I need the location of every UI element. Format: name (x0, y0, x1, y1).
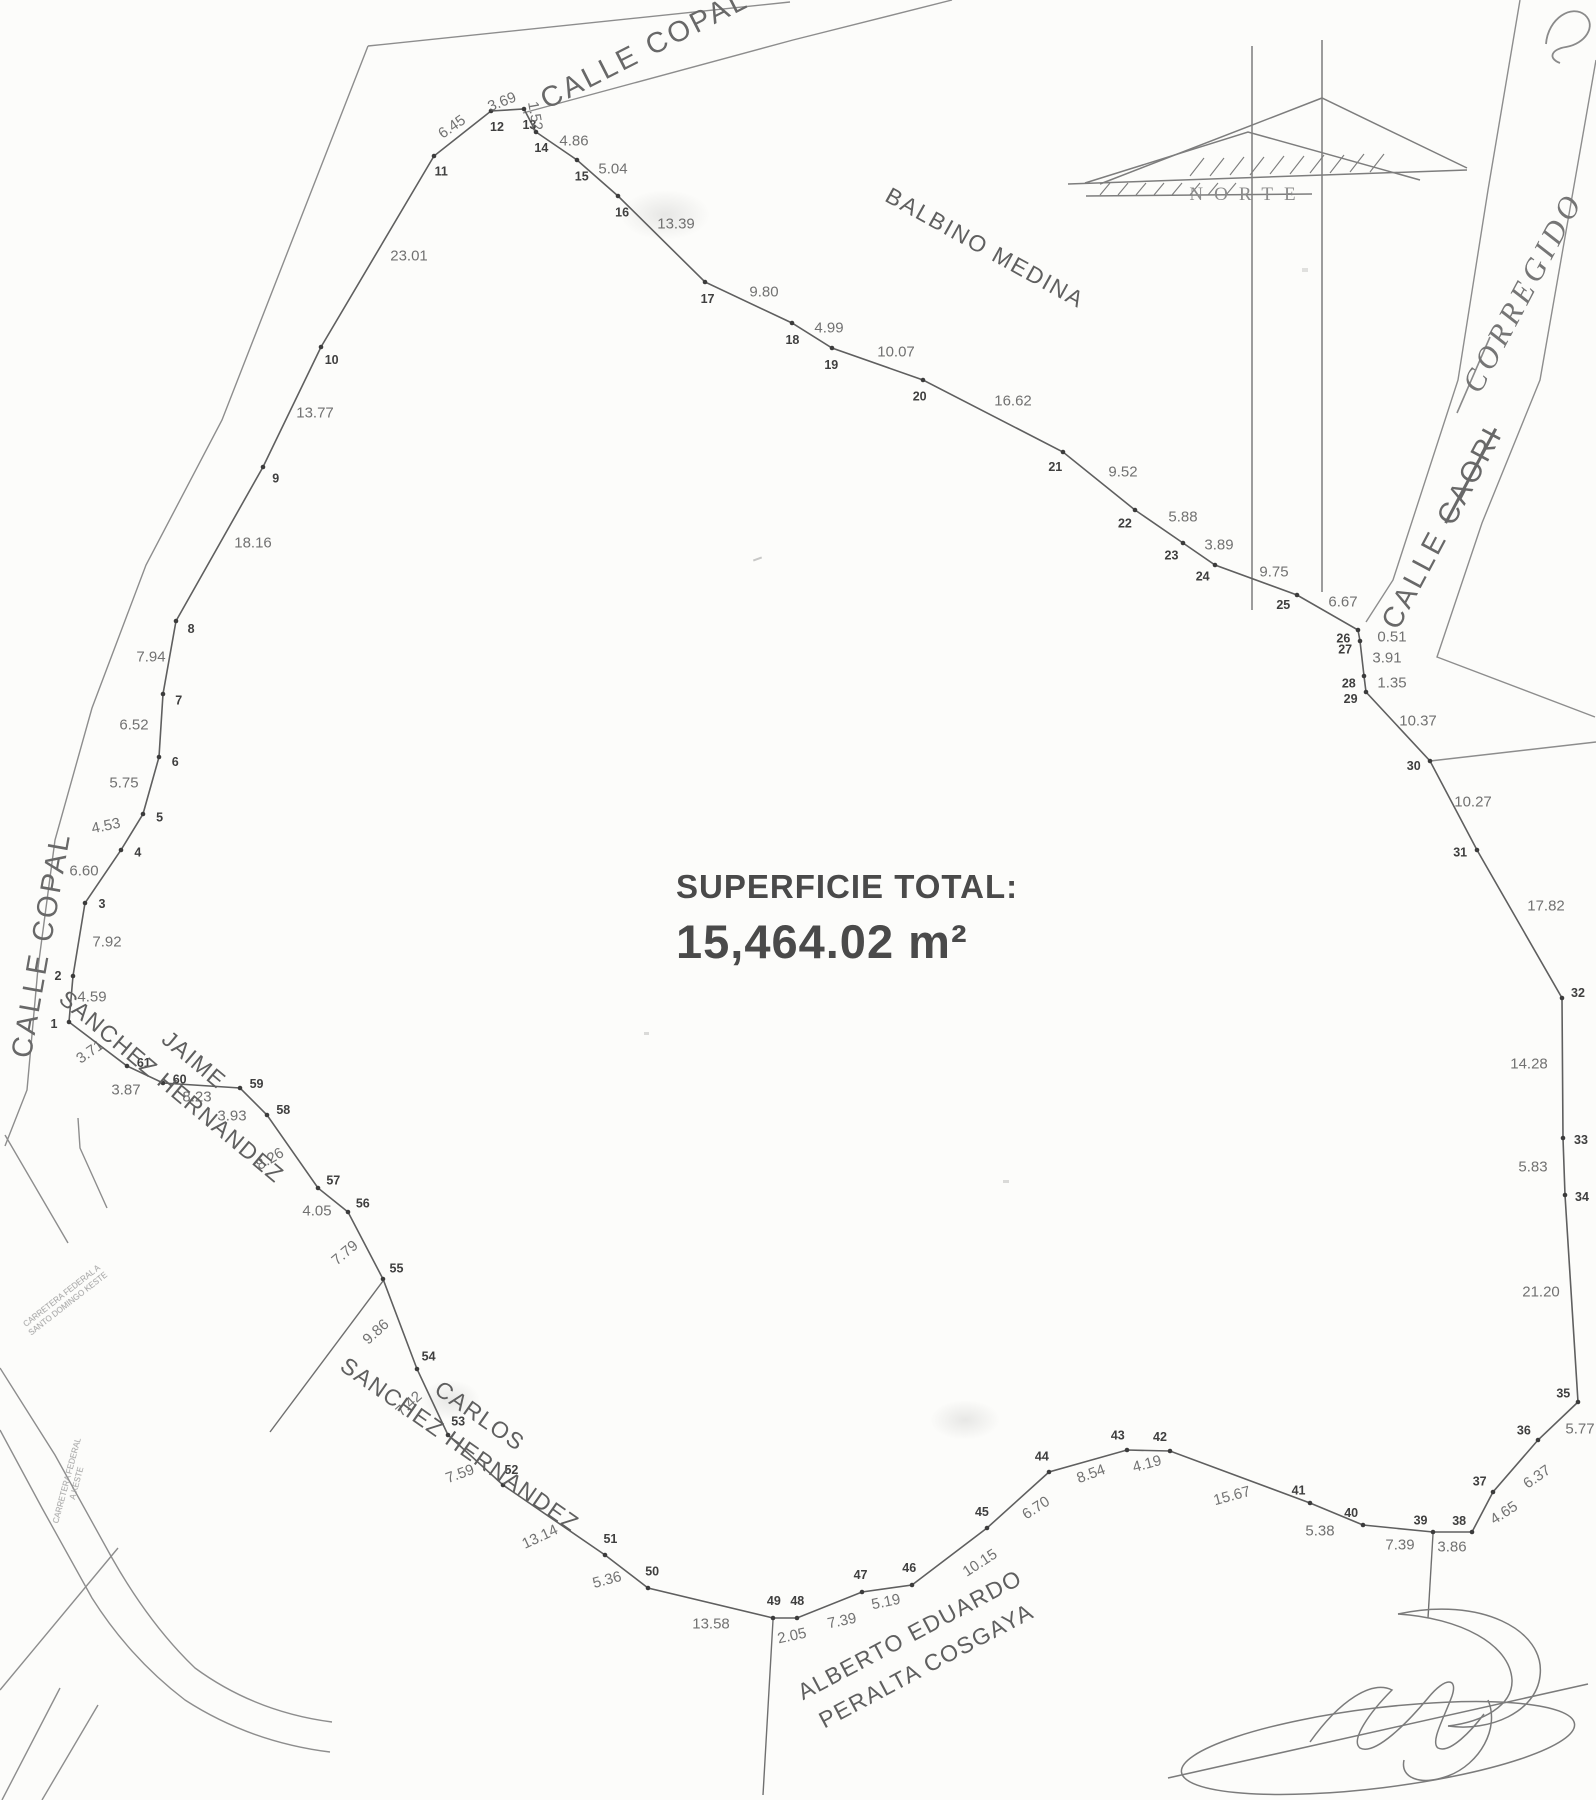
svg-text:6.45: 6.45 (435, 112, 469, 143)
vertex-number: 55 (390, 1262, 404, 1276)
vertex-number: 28 (1342, 677, 1356, 691)
vertex-number: 43 (1111, 1429, 1125, 1443)
segment-distance: 2.05 (776, 1625, 808, 1648)
vertex-dot (1133, 508, 1138, 513)
svg-text:6.70: 6.70 (1019, 1493, 1053, 1523)
svg-text:7.94: 7.94 (136, 649, 165, 666)
segment-distance: 6.37 (1520, 1462, 1554, 1493)
svg-text:6.52: 6.52 (119, 717, 148, 734)
segment-distance: 7.92 (92, 934, 121, 951)
vertex-dot (119, 848, 124, 853)
vertex-number: 21 (1048, 460, 1062, 474)
vertex-dot (1560, 996, 1565, 1001)
area-title: SUPERFICIE TOTAL: (676, 868, 1018, 906)
vertex-dot (1536, 1438, 1541, 1443)
segment-distance: 5.83 (1518, 1159, 1547, 1176)
vertex-dot (1475, 848, 1480, 853)
vertex-number: 37 (1473, 1474, 1487, 1488)
svg-text:15.67: 15.67 (1212, 1483, 1253, 1509)
segment-distance: 5.77 (1565, 1421, 1594, 1438)
segment-distance: 9.80 (749, 284, 778, 301)
segment-distance: 7.39 (1385, 1537, 1414, 1554)
segment-distance: 15.67 (1212, 1483, 1253, 1509)
svg-text:4.53: 4.53 (90, 815, 122, 838)
svg-text:4.86: 4.86 (559, 133, 588, 150)
vertex-dot (790, 321, 795, 326)
vertex-number: 27 (1338, 642, 1352, 656)
vertex-dot (1356, 628, 1361, 633)
vertex-number: 34 (1575, 1190, 1589, 1204)
segment-distance: 4.53 (90, 815, 122, 838)
vertex-dot (381, 1277, 386, 1282)
svg-text:10.27: 10.27 (1454, 794, 1492, 811)
segment-distance: 4.19 (1131, 1452, 1164, 1476)
svg-text:7.39: 7.39 (1385, 1537, 1414, 1554)
svg-text:10.37: 10.37 (1399, 713, 1437, 730)
segment-distance: 6.70 (1019, 1493, 1053, 1523)
vertex-number: 5 (156, 810, 163, 824)
vertex-dot (316, 1186, 321, 1191)
svg-text:5.88: 5.88 (1168, 509, 1197, 526)
handwritten-squiggle (1546, 11, 1590, 63)
svg-text:4.05: 4.05 (302, 1203, 331, 1220)
vertex-number: 22 (1118, 517, 1132, 531)
vertex-dot (921, 378, 926, 383)
svg-text:5.36: 5.36 (591, 1568, 624, 1592)
vertex-dot (603, 1553, 608, 1558)
segment-distance: 4.05 (302, 1203, 331, 1220)
svg-text:6.60: 6.60 (69, 863, 98, 880)
svg-text:8.54: 8.54 (1074, 1461, 1107, 1487)
vertex-number: 47 (854, 1568, 868, 1582)
svg-text:13.77: 13.77 (296, 405, 334, 422)
vertex-dot (161, 692, 166, 697)
vertex-dot (319, 345, 324, 350)
vertex-number: 1 (51, 1017, 58, 1031)
svg-text:3.86: 3.86 (1437, 1539, 1466, 1556)
segment-distance: 6.45 (435, 112, 469, 143)
vertex-number: 41 (1292, 1483, 1306, 1497)
segment-distance: 5.38 (1305, 1523, 1334, 1540)
svg-text:21.20: 21.20 (1522, 1284, 1560, 1301)
segment-distance: 23.01 (390, 248, 428, 265)
segment-distance: 9.52 (1108, 464, 1137, 481)
segment-distance: 7.39 (826, 1610, 858, 1633)
segment-distance: 14.28 (1510, 1056, 1548, 1073)
segment-distance: 13.77 (296, 405, 334, 422)
svg-text:10.07: 10.07 (877, 344, 915, 361)
vertex-dot (141, 812, 146, 817)
vertex-number: 46 (902, 1561, 916, 1575)
vertex-dot (157, 755, 162, 760)
segment-distance: 5.04 (598, 161, 627, 178)
vertex-number: 12 (490, 120, 504, 134)
svg-text:16.62: 16.62 (994, 393, 1032, 410)
segment-distance: 10.07 (877, 344, 915, 361)
vertex-number: 29 (1344, 692, 1358, 706)
svg-text:3.91: 3.91 (1372, 650, 1401, 667)
segment-distance: 6.52 (119, 717, 148, 734)
drop-line-vertex-49 (763, 1620, 773, 1795)
vertex-dot (1181, 541, 1186, 546)
signature (1168, 1609, 1588, 1800)
vertex-number: 11 (435, 164, 448, 178)
vertex-number: 48 (790, 1594, 804, 1608)
vertex-dot (1358, 639, 1363, 644)
segment-distance: 16.62 (994, 393, 1032, 410)
vertex-number: 10 (325, 353, 339, 367)
vertex-number: 14 (534, 141, 548, 155)
vertex-number: 38 (1452, 1514, 1466, 1528)
vertex-number: 17 (701, 292, 715, 306)
vertex-dot (646, 1586, 651, 1591)
segment-distance: 4.99 (814, 320, 843, 337)
svg-text:3.89: 3.89 (1204, 537, 1233, 554)
vertex-number: 44 (1035, 1450, 1049, 1464)
segment-distance: 5.75 (109, 775, 138, 792)
vertex-dot (83, 901, 88, 906)
vertex-number: 36 (1517, 1424, 1531, 1438)
svg-text:18.16: 18.16 (234, 535, 272, 552)
vertex-dot (1168, 1449, 1173, 1454)
vertex-number: 30 (1407, 759, 1421, 773)
vertex-dot (71, 974, 76, 979)
vertex-number: 33 (1574, 1133, 1588, 1147)
segment-distance: 5.36 (591, 1568, 624, 1592)
vertex-dot (860, 1590, 865, 1595)
vertex-dot (1361, 1523, 1366, 1528)
street-lines-southwest-roads (0, 1368, 332, 1800)
north-label: NORTE (1189, 184, 1306, 206)
vertex-number: 9 (272, 471, 279, 485)
segment-distance: 3.87 (111, 1082, 140, 1099)
vertex-dot (346, 1210, 351, 1215)
segment-distance: 13.39 (657, 216, 695, 233)
segment-distance: 7.79 (328, 1237, 361, 1269)
vertex-dot (830, 346, 835, 351)
vertex-number: 56 (356, 1197, 370, 1211)
vertex-dot (1364, 690, 1369, 695)
svg-text:7.92: 7.92 (92, 934, 121, 951)
vertex-number: 7 (175, 693, 182, 707)
vertex-number: 6 (172, 755, 179, 769)
svg-text:9.52: 9.52 (1108, 464, 1137, 481)
segment-distance: 5.19 (870, 1591, 902, 1614)
svg-text:5.75: 5.75 (109, 775, 138, 792)
vertex-dot (616, 194, 621, 199)
vertex-dot (1431, 1530, 1436, 1535)
vertex-dot (174, 619, 179, 624)
survey-plan-page: 1234567891011121314151617181920212223242… (0, 0, 1596, 1800)
vertex-number: 2 (55, 969, 62, 983)
svg-text:17.82: 17.82 (1527, 898, 1565, 915)
north-roof-large (1100, 98, 1467, 184)
svg-text:7.39: 7.39 (826, 1610, 858, 1633)
segment-distance: 18.16 (234, 535, 272, 552)
vertex-dot (575, 158, 580, 163)
svg-text:3.69: 3.69 (485, 89, 518, 116)
vertex-dot (1576, 1400, 1581, 1405)
segment-distance: 5.88 (1168, 509, 1197, 526)
segment-distance: 3.86 (1437, 1539, 1466, 1556)
vertex-dot (985, 1526, 990, 1531)
vertex-number: 25 (1276, 598, 1290, 612)
vertex-number: 57 (326, 1174, 340, 1188)
segment-distance: 13.58 (692, 1616, 730, 1633)
segment-distance: 8.54 (1074, 1461, 1107, 1487)
vertex-number: 18 (785, 333, 799, 347)
segment-distance: 10.27 (1454, 794, 1492, 811)
vertex-dot (1213, 563, 1218, 568)
segment-distance: 3.89 (1204, 537, 1233, 554)
svg-text:6.37: 6.37 (1520, 1462, 1554, 1493)
vertex-dot (771, 1616, 776, 1621)
vertex-number: 20 (913, 390, 927, 404)
svg-text:2.05: 2.05 (776, 1625, 808, 1648)
vertex-number: 51 (603, 1532, 617, 1546)
svg-text:5.04: 5.04 (598, 161, 627, 178)
vertex-number: 24 (1196, 570, 1210, 584)
vertex-dot (703, 280, 708, 285)
segment-distance: 4.65 (1487, 1498, 1521, 1528)
segment-distance: 21.20 (1522, 1284, 1560, 1301)
vertex-dot (1428, 759, 1433, 764)
svg-text:6.67: 6.67 (1328, 594, 1357, 611)
vertex-number: 50 (645, 1565, 659, 1579)
vertex-number: 45 (975, 1505, 989, 1519)
segment-distance: 10.37 (1399, 713, 1437, 730)
svg-text:23.01: 23.01 (390, 248, 428, 265)
vertex-dot (1362, 674, 1367, 679)
svg-text:14.28: 14.28 (1510, 1056, 1548, 1073)
vertex-dot (1061, 450, 1066, 455)
vertex-number: 39 (1414, 1513, 1428, 1527)
svg-text:9.80: 9.80 (749, 284, 778, 301)
vertex-number: 8 (188, 622, 195, 636)
vertex-dot (1295, 593, 1300, 598)
vertex-number: 16 (615, 205, 629, 219)
svg-text:4.99: 4.99 (814, 320, 843, 337)
svg-text:1.35: 1.35 (1377, 675, 1406, 692)
svg-text:5.19: 5.19 (870, 1591, 902, 1614)
area-title-block: SUPERFICIE TOTAL: 15,464.02 m² (676, 868, 1018, 969)
vertex-dot (1491, 1490, 1496, 1495)
vertex-number: 49 (767, 1594, 781, 1608)
vertex-dot (261, 465, 266, 470)
svg-text:5.77: 5.77 (1565, 1421, 1594, 1438)
svg-text:5.83: 5.83 (1518, 1159, 1547, 1176)
vertex-number: 35 (1556, 1386, 1570, 1400)
vertex-dot (1125, 1448, 1130, 1453)
vertex-number: 42 (1153, 1430, 1167, 1444)
segment-distance: 6.60 (69, 863, 98, 880)
vertex-dot (1470, 1530, 1475, 1535)
vertex-dot (1047, 1470, 1052, 1475)
vertex-number: 4 (134, 846, 141, 860)
svg-text:3.87: 3.87 (111, 1082, 140, 1099)
area-value: 15,464.02 m² (676, 914, 1018, 969)
svg-text:5.38: 5.38 (1305, 1523, 1334, 1540)
vertex-number: 15 (575, 169, 589, 183)
segment-distance: 3.91 (1372, 650, 1401, 667)
vertex-dot (1561, 1136, 1566, 1141)
vertex-number: 32 (1571, 986, 1585, 1000)
vertex-number: 31 (1453, 846, 1467, 860)
vertex-number: 3 (98, 897, 105, 911)
segment-distance: 4.86 (559, 133, 588, 150)
vertex-dot (795, 1616, 800, 1621)
vertex-number: 19 (824, 358, 838, 372)
segment-distance: 9.75 (1259, 564, 1288, 581)
segment-distance: 1.35 (1377, 675, 1406, 692)
segment-distance: 17.82 (1527, 898, 1565, 915)
vertex-dot (1308, 1501, 1313, 1506)
vertex-number: 23 (1165, 549, 1179, 563)
segment-distance: 6.67 (1328, 594, 1357, 611)
svg-text:13.58: 13.58 (692, 1616, 730, 1633)
segment-distance: 3.69 (485, 89, 518, 116)
svg-text:7.79: 7.79 (328, 1237, 361, 1269)
vertex-dot (1563, 1193, 1568, 1198)
vertex-number: 40 (1344, 1506, 1358, 1520)
vertex-dot (910, 1583, 915, 1588)
svg-text:13.39: 13.39 (657, 216, 695, 233)
svg-text:4.65: 4.65 (1487, 1498, 1521, 1528)
vertex-dot (432, 154, 437, 159)
svg-text:4.19: 4.19 (1131, 1452, 1164, 1476)
segment-distance: 7.94 (136, 649, 165, 666)
svg-text:9.75: 9.75 (1259, 564, 1288, 581)
drop-line-vertex-39 (1428, 1534, 1433, 1618)
